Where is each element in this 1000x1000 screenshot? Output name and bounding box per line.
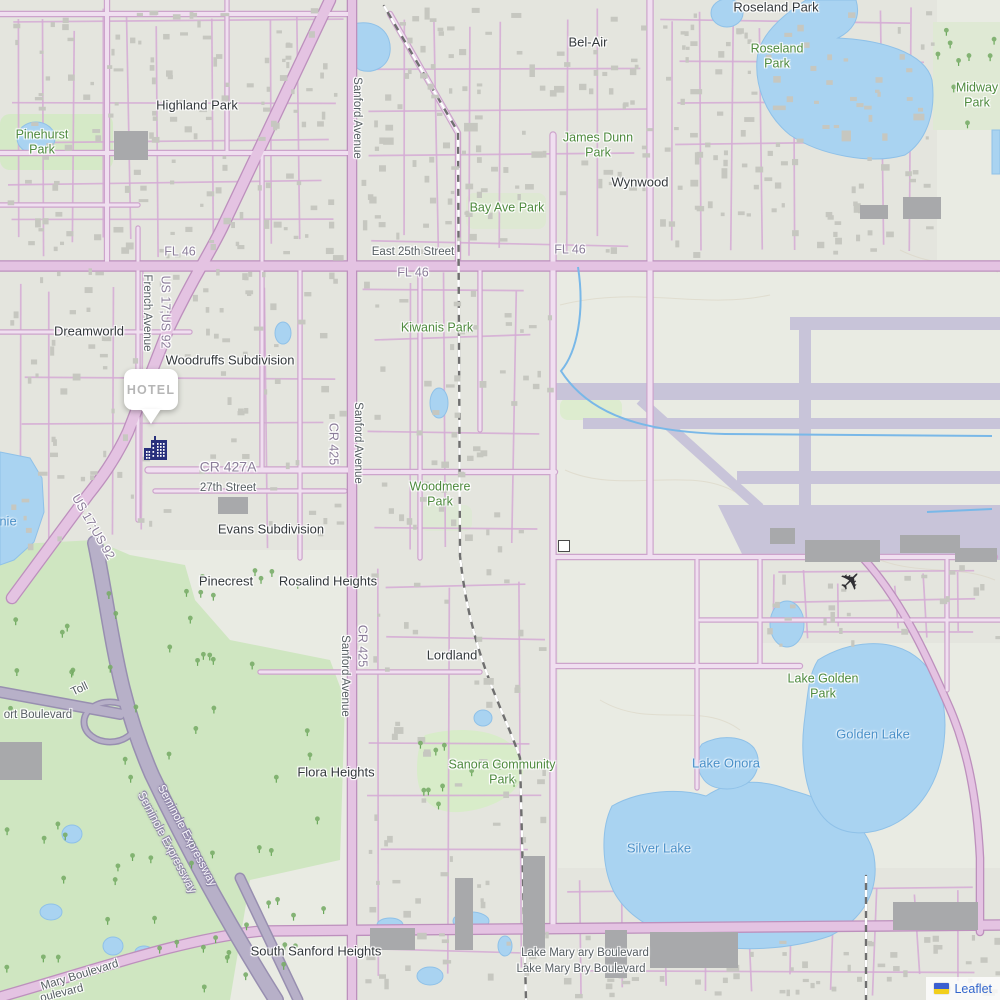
hotel-building-icon [140, 433, 172, 463]
hotel-marker-bubble[interactable]: HOTEL [124, 369, 178, 410]
hotel-marker-label: HOTEL [127, 383, 175, 397]
hotel-marker-tail [141, 409, 161, 434]
hotel-marker[interactable]: HOTEL [124, 369, 178, 410]
attribution-bar: Leaflet [926, 977, 1000, 1000]
ukraine-flag-icon [934, 983, 949, 994]
map-canvas[interactable]: Roseland ParkRoseland ParkMidway ParkBel… [0, 0, 1000, 1000]
leaflet-attribution-link[interactable]: Leaflet [954, 982, 992, 996]
building-outline-icon [558, 540, 570, 552]
map-tiles [0, 0, 1000, 1000]
